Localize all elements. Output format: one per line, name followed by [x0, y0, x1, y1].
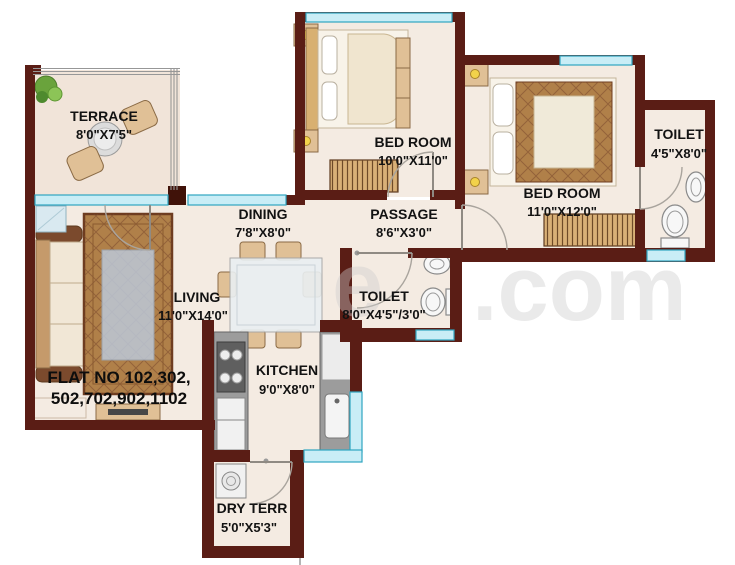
room-label-bedroom2: BED ROOM: [524, 185, 601, 201]
room-dims-bedroom2: 11'0"X12'0": [527, 204, 597, 219]
floorplan-page: e .com TERRACE 8'0"X7'5" BED ROOM 10'0"X…: [0, 0, 735, 565]
carpet: [84, 214, 172, 394]
wall: [202, 546, 304, 558]
room-label-living: LIVING: [174, 289, 221, 305]
wall: [455, 195, 465, 209]
wall: [635, 110, 645, 167]
window: [188, 195, 286, 205]
window: [35, 195, 168, 205]
flat-number-line2: 502,702,902,1102: [51, 389, 187, 408]
wall: [25, 420, 215, 430]
dresser-icon: [396, 38, 410, 128]
window: [304, 450, 362, 462]
room-label-bedroom1: BED ROOM: [375, 134, 452, 150]
wall: [214, 450, 250, 462]
wall: [25, 65, 35, 200]
window: [416, 330, 454, 340]
side-table-icon: [36, 206, 66, 232]
room-label-dry-terrace: DRY TERR: [217, 500, 288, 516]
room-label-kitchen: KITCHEN: [256, 362, 318, 378]
washing-machine-icon: [216, 464, 246, 498]
wall: [455, 60, 465, 197]
room-label-terrace: TERRACE: [70, 108, 138, 124]
window: [560, 56, 632, 65]
kitchen-counter-left: [214, 332, 248, 454]
sink-icon: [325, 394, 349, 438]
room-dims-toilet-middle: 8'0"X4'5"/3'0": [342, 307, 425, 322]
room-dims-living: 11'0"X14'0": [158, 308, 228, 323]
room-dims-terrace: 8'0"X7'5": [76, 127, 132, 142]
stove-icon: [217, 342, 245, 392]
wall: [202, 320, 214, 558]
room-dims-bedroom1: 10'0"X11'0": [378, 153, 448, 168]
room-dims-dry-terrace: 5'0"X5'3": [221, 520, 277, 535]
wall: [635, 100, 715, 110]
window: [350, 392, 362, 452]
room-label-passage: PASSAGE: [370, 206, 437, 222]
fridge-icon: [217, 398, 245, 450]
wall: [450, 248, 462, 340]
wall: [295, 190, 387, 200]
kitchen-counter-right: [320, 332, 354, 454]
room-label-toilet-middle: TOILET: [359, 288, 409, 304]
room-label-dining: DINING: [239, 206, 288, 222]
window: [306, 13, 452, 22]
room-label-toilet-right: TOILET: [654, 126, 704, 142]
flat-number-line1: FLAT NO 102,302,: [47, 368, 190, 387]
watermark-text: .com: [472, 238, 687, 340]
floorplan-svg: e .com TERRACE 8'0"X7'5" BED ROOM 10'0"X…: [0, 0, 735, 565]
room-dims-kitchen: 9'0"X8'0": [259, 382, 315, 397]
wall: [25, 190, 35, 430]
room-dims-passage: 8'6"X3'0": [376, 225, 432, 240]
room-dims-dining: 7'8"X8'0": [235, 225, 291, 240]
room-dims-toilet-right: 4'5"X8'0": [651, 146, 707, 161]
sofa-icon: [36, 226, 84, 382]
wall: [705, 100, 715, 262]
wall: [25, 65, 41, 75]
washbasin-icon: [686, 172, 706, 202]
wall: [295, 12, 305, 205]
